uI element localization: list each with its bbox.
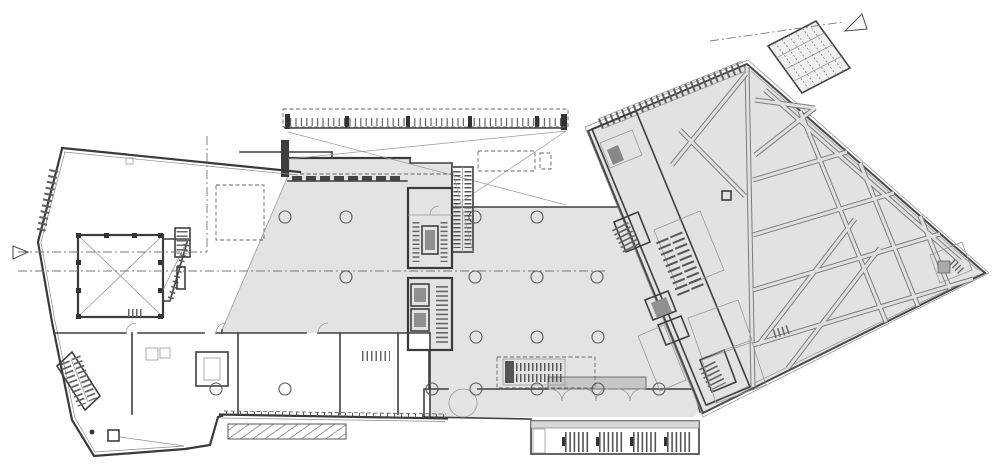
floor-plan-page xyxy=(0,0,1000,468)
floor-plan-svg xyxy=(0,0,1000,468)
fixture xyxy=(146,348,158,360)
sight-line xyxy=(288,131,566,159)
elevator-cab xyxy=(414,288,426,302)
dashed-box xyxy=(478,151,535,171)
section-marker-west xyxy=(13,246,28,259)
south-west-edge xyxy=(220,413,447,439)
dashed-box xyxy=(216,185,264,240)
section-marker-northeast xyxy=(845,14,867,31)
column-pier xyxy=(108,430,119,441)
skylight-grid-panel xyxy=(768,21,850,93)
dashed-line xyxy=(224,411,446,414)
auditorium-void-room xyxy=(76,233,163,319)
west-perimeter-wall xyxy=(38,149,222,456)
stage-trapezoid xyxy=(163,228,190,301)
door-arc xyxy=(126,323,136,333)
external-south-stair xyxy=(531,421,699,454)
structural-column xyxy=(279,383,291,395)
small-column xyxy=(90,430,95,435)
elevator-cab xyxy=(425,230,435,250)
structural-column xyxy=(210,383,222,395)
ramp-hatch-strip xyxy=(228,424,346,439)
dashed-box xyxy=(540,153,551,169)
elevator-cab xyxy=(414,313,426,327)
